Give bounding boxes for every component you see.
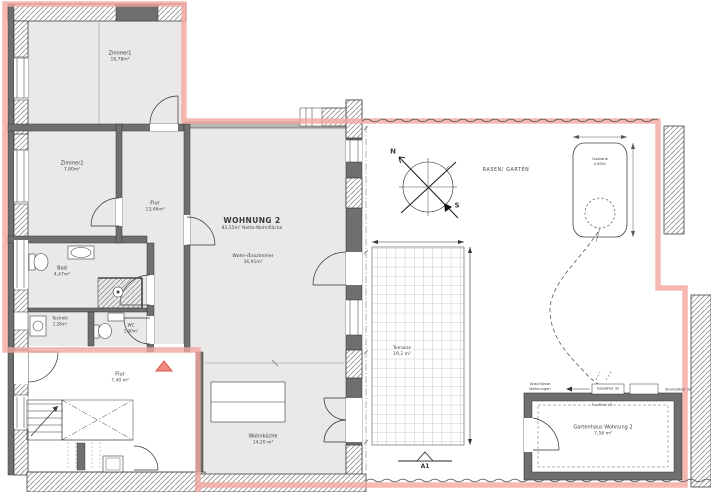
gas-pipe-dashed [550, 232, 598, 384]
floorplan-drawing [0, 0, 711, 492]
room-label-wohnzimmer: Wohn-/Esszimmer 36,91m² [232, 254, 273, 266]
gaszaehler-label: Gaszähler 3x [597, 387, 619, 392]
entry-triangle-icon [156, 361, 172, 371]
compass-south-label: S [454, 201, 459, 210]
gas-tank [573, 135, 635, 242]
stromzaehler-label: Stromzähler 3x [665, 388, 691, 393]
apartment-title: WOHNUNG 2 83,55m² Netto-Wohnfläche [222, 216, 283, 232]
terrasse-label: Terrasse 19,2 m² [392, 346, 412, 358]
room-label-zimmer1: Zimmer1 16,78m² [109, 51, 132, 64]
gastank-label: Gastank 4.850L [592, 156, 608, 166]
room-label-bad: Bad 4,47m² [54, 266, 70, 279]
section-label: A1 [421, 463, 430, 471]
room-label-wc: WC 1,40m² [124, 322, 138, 333]
trauflinie-label: Trauflinie VD [591, 403, 613, 407]
compass-icon [399, 157, 458, 218]
garden-label: RASEN/ GARTEN [483, 168, 530, 174]
terrace-tiles [372, 240, 472, 445]
section-marker [398, 452, 452, 461]
room-label-flur-og: Flur 13,46m² [145, 201, 164, 214]
gartenhaus-label: Gartenhaus Wohnung 2 7,56 m² [573, 425, 632, 438]
room-label-technik: Technik 1,28m² [52, 315, 68, 326]
wc-sink-icon [108, 313, 124, 321]
compass-north-label: N [390, 147, 396, 156]
room-label-flur-eg: Flur 7,40 m² [111, 372, 129, 385]
room-label-zimmer2: Zimmer2 7,80m² [61, 161, 84, 174]
floorplan: Zimmer1 16,78m² Zimmer2 7,80m² Flur 13,4… [0, 0, 711, 492]
anschluesse-label: Anschlüsse Wohnungen [529, 382, 550, 392]
room-label-wohnkueche: Wohnküche 14,20 m² [249, 434, 278, 447]
